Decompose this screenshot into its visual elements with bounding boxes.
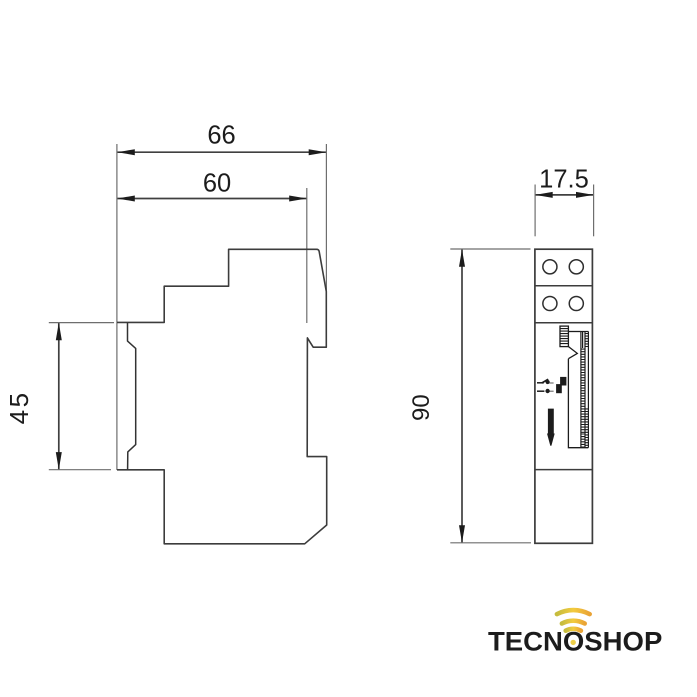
svg-text:17.5: 17.5	[539, 166, 589, 194]
svg-text:45: 45	[4, 390, 34, 424]
svg-text:TECNOSHOP: TECNOSHOP	[488, 627, 662, 657]
svg-text:60: 60	[203, 170, 231, 198]
svg-text:90: 90	[408, 394, 435, 421]
svg-text:66: 66	[207, 121, 235, 149]
